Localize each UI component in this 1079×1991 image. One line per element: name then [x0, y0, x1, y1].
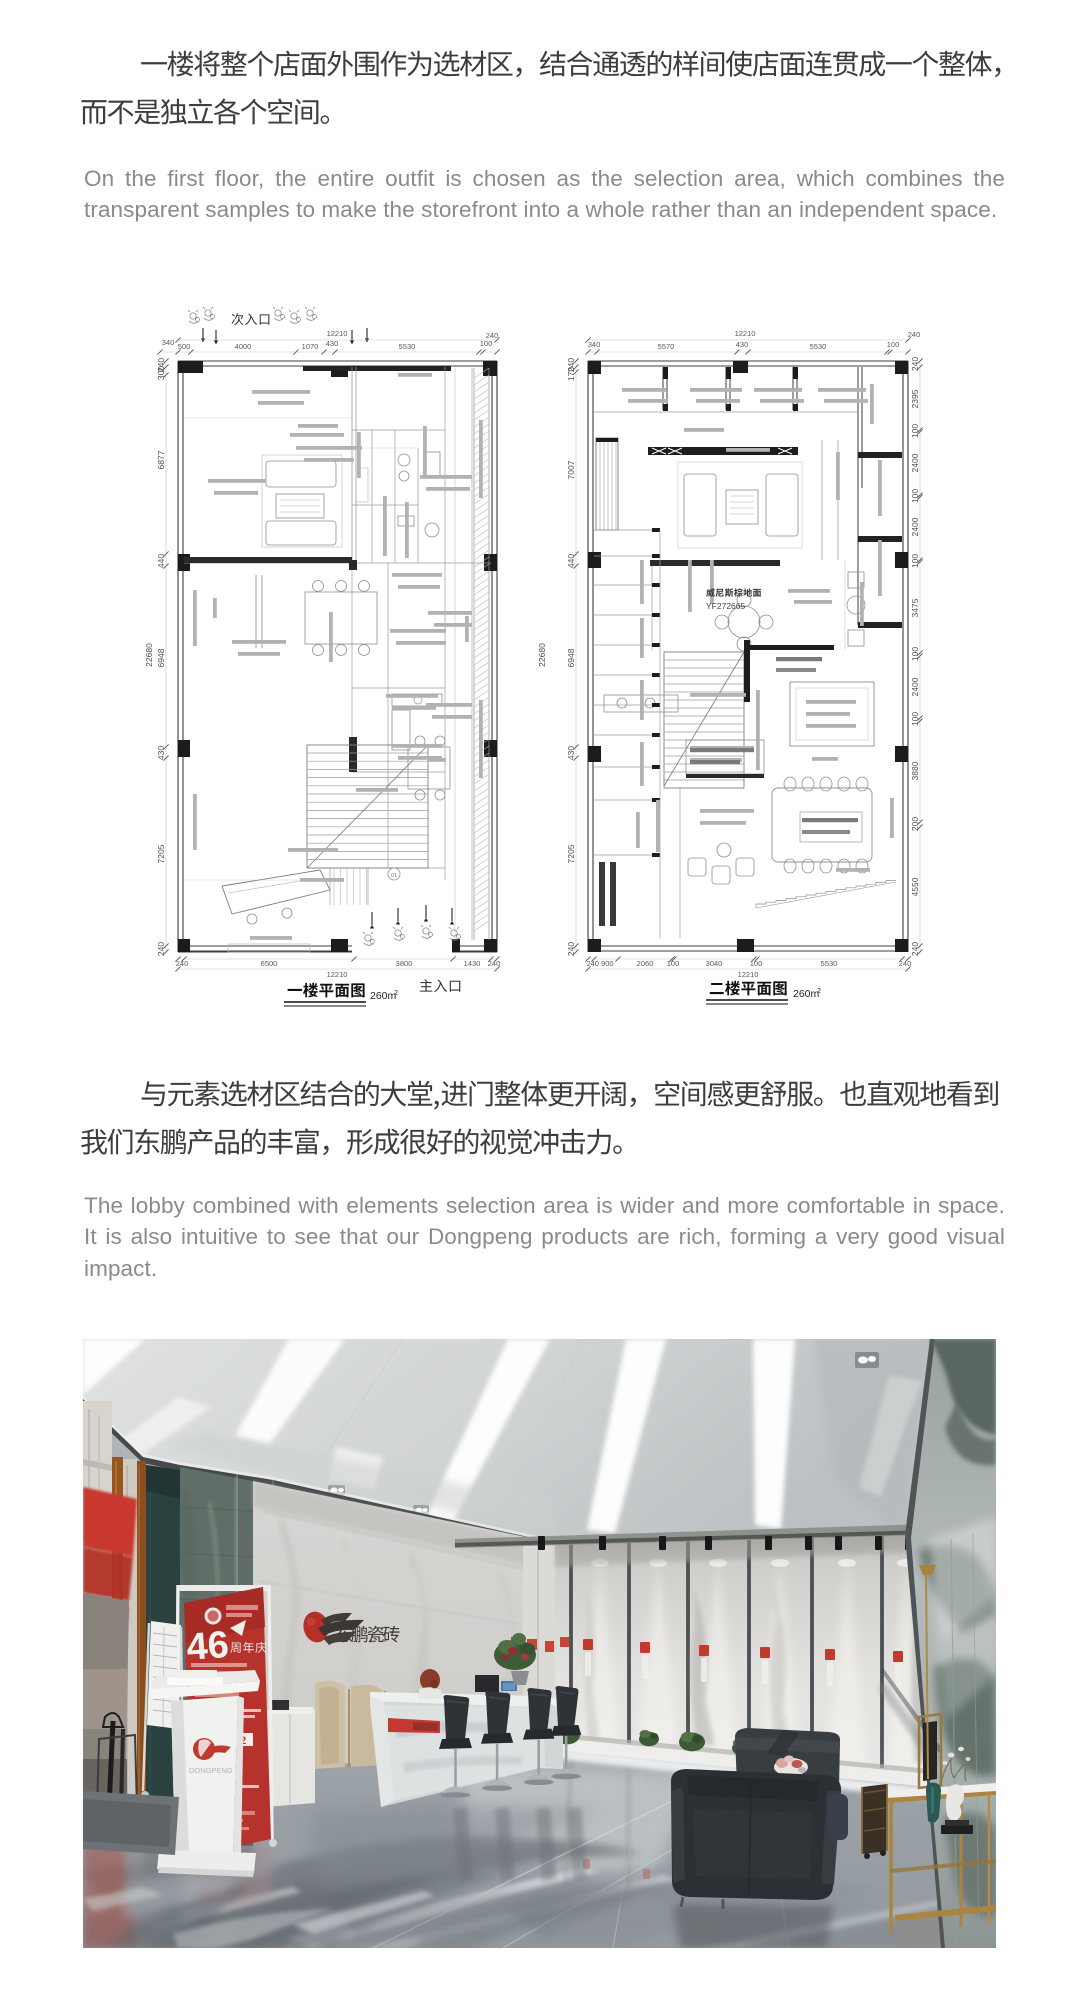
svg-text:260m: 260m	[370, 990, 397, 1002]
svg-text:2400: 2400	[910, 517, 920, 536]
svg-text:5530: 5530	[821, 959, 838, 968]
svg-text:2400: 2400	[910, 453, 920, 472]
svg-text:2060: 2060	[637, 959, 654, 968]
svg-text:7007: 7007	[566, 460, 576, 479]
svg-text:240: 240	[176, 959, 189, 968]
svg-text:430: 430	[736, 340, 749, 349]
svg-text:100: 100	[667, 959, 680, 968]
svg-text:22680: 22680	[144, 643, 154, 667]
svg-text:2: 2	[394, 990, 398, 997]
svg-text:4000: 4000	[235, 342, 252, 351]
svg-text:340: 340	[162, 338, 175, 347]
svg-text:6500: 6500	[261, 959, 278, 968]
svg-text:300: 300	[156, 366, 166, 380]
svg-text:DONGPENG: DONGPENG	[189, 1766, 233, 1775]
svg-text:12210: 12210	[327, 329, 348, 338]
svg-text:260m: 260m	[793, 988, 820, 1000]
svg-text:430: 430	[156, 746, 166, 760]
svg-text:7205: 7205	[566, 844, 576, 863]
svg-text:100: 100	[750, 959, 763, 968]
svg-text:3475: 3475	[910, 598, 920, 617]
svg-text:500: 500	[178, 342, 191, 351]
svg-text:3800: 3800	[396, 959, 413, 968]
svg-text:240: 240	[908, 330, 921, 339]
svg-text:01: 01	[391, 873, 397, 879]
svg-text:5570: 5570	[658, 342, 675, 351]
svg-text:6948: 6948	[566, 648, 576, 667]
svg-text:12210: 12210	[327, 970, 348, 979]
svg-text:240: 240	[899, 959, 912, 968]
svg-text:YF272665: YF272665	[706, 601, 745, 611]
svg-text:100: 100	[887, 340, 900, 349]
svg-text:4550: 4550	[910, 877, 920, 896]
svg-text:5530: 5530	[810, 342, 827, 351]
svg-text:1430: 1430	[464, 959, 481, 968]
svg-text:240: 240	[488, 959, 501, 968]
svg-text:340: 340	[588, 340, 601, 349]
svg-text:240: 240	[566, 942, 576, 956]
svg-text:3880: 3880	[910, 761, 920, 780]
svg-text:7205: 7205	[156, 844, 166, 863]
svg-text:2395: 2395	[910, 389, 920, 408]
svg-text:430: 430	[326, 339, 339, 348]
svg-text:440: 440	[566, 554, 576, 568]
svg-text:170: 170	[566, 367, 576, 381]
svg-text:12210: 12210	[738, 970, 759, 979]
svg-text:2: 2	[817, 988, 821, 995]
svg-text:6948: 6948	[156, 648, 166, 667]
svg-text:3040: 3040	[706, 959, 723, 968]
svg-text:1070: 1070	[302, 342, 319, 351]
svg-text:100: 100	[480, 339, 493, 348]
svg-text:430: 430	[566, 746, 576, 760]
svg-text:240: 240	[156, 942, 166, 956]
svg-text:5530: 5530	[399, 342, 416, 351]
svg-text:2400: 2400	[910, 677, 920, 696]
svg-text:440: 440	[156, 554, 166, 568]
svg-text:6877: 6877	[156, 450, 166, 469]
svg-text:22680: 22680	[537, 643, 547, 667]
svg-text:12210: 12210	[735, 329, 756, 338]
svg-text:240: 240	[486, 331, 499, 340]
svg-text:46: 46	[185, 1624, 230, 1669]
